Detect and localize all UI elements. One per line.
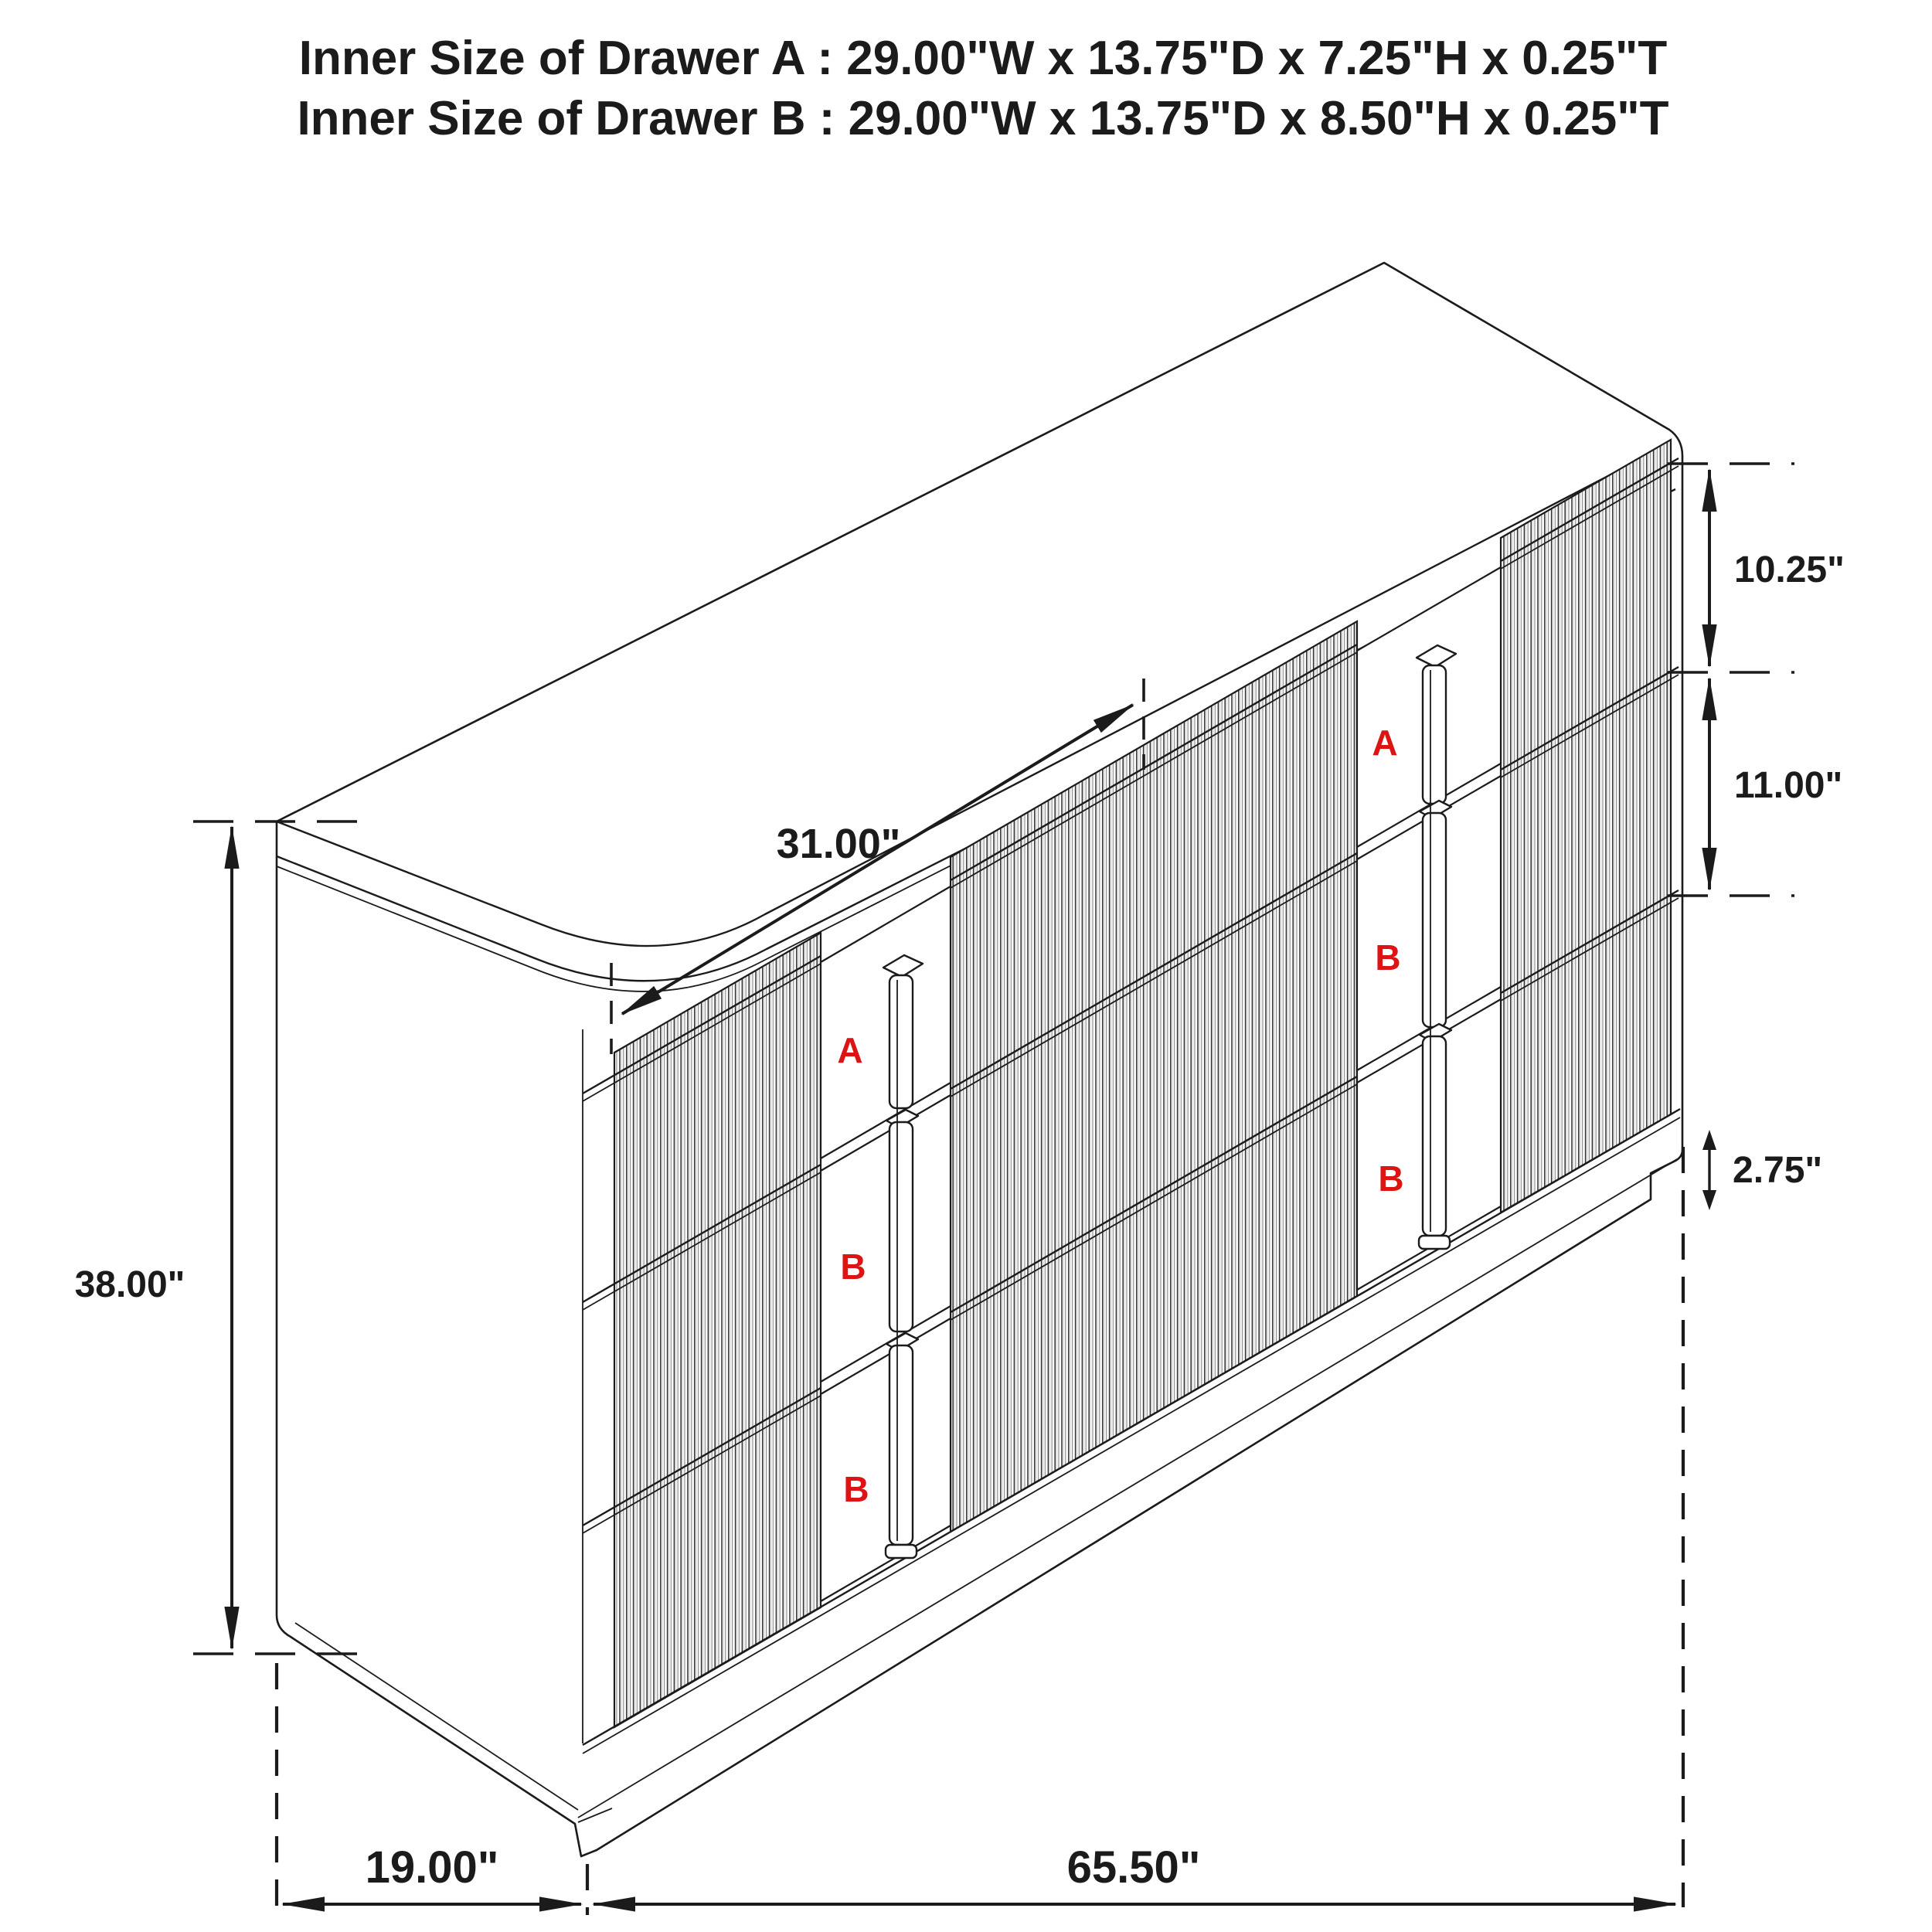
handle-right-segment-mid [1423, 813, 1446, 1027]
title-block: Inner Size of Drawer A : 29.00"W x 13.75… [297, 32, 1668, 145]
diagram-page: Inner Size of Drawer A : 29.00"W x 13.75… [0, 0, 1932, 1932]
drawer-letter-right-b1: B [1375, 937, 1400, 978]
drawer-letter-left-a: A [837, 1030, 862, 1070]
cabinet-drawing: A B B A B B [277, 263, 1682, 1856]
fluted-band-right [1501, 440, 1671, 1213]
dim-label-overall-width: 65.50" [1067, 1842, 1201, 1893]
title-line-2: Inner Size of Drawer B : 29.00"W x 13.75… [297, 92, 1668, 145]
dim-label-depth: 19.00" [366, 1842, 499, 1893]
handle-right-segment-top [1423, 665, 1446, 804]
dim-label-overall-height: 38.00" [75, 1264, 185, 1305]
handle-right-bottom-cap [1419, 1236, 1450, 1249]
handle-left-segment-mid [889, 1122, 913, 1332]
drawer-letter-left-b2: B [843, 1469, 869, 1509]
dim-label-base-height: 2.75" [1733, 1150, 1822, 1191]
drawer-letter-left-b1: B [840, 1247, 866, 1287]
fluted-band-left [614, 933, 821, 1727]
handle-left-segment-top [889, 975, 913, 1108]
drawer-letter-right-b2: B [1378, 1158, 1403, 1199]
dim-label-top-drawer-height: 10.25" [1734, 549, 1845, 590]
dim-drawer-heights: 10.25" 11.00" [1668, 464, 1845, 896]
dresser-dimension-diagram: Inner Size of Drawer A : 29.00"W x 13.75… [0, 0, 1932, 1932]
stile-left-panels [821, 886, 951, 1601]
handle-left-segment-bottom [889, 1345, 913, 1545]
dim-label-drawer-front-width: 31.00" [777, 821, 901, 867]
handle-right-segment-bottom [1423, 1036, 1446, 1236]
dim-base-height: 2.75" [1683, 1130, 1822, 1907]
drawer-letter-right-a: A [1372, 723, 1397, 763]
title-line-1: Inner Size of Drawer A : 29.00"W x 13.75… [299, 32, 1668, 85]
dim-label-middle-drawer-height: 11.00" [1734, 765, 1842, 806]
handle-left-bottom-cap [886, 1545, 917, 1558]
